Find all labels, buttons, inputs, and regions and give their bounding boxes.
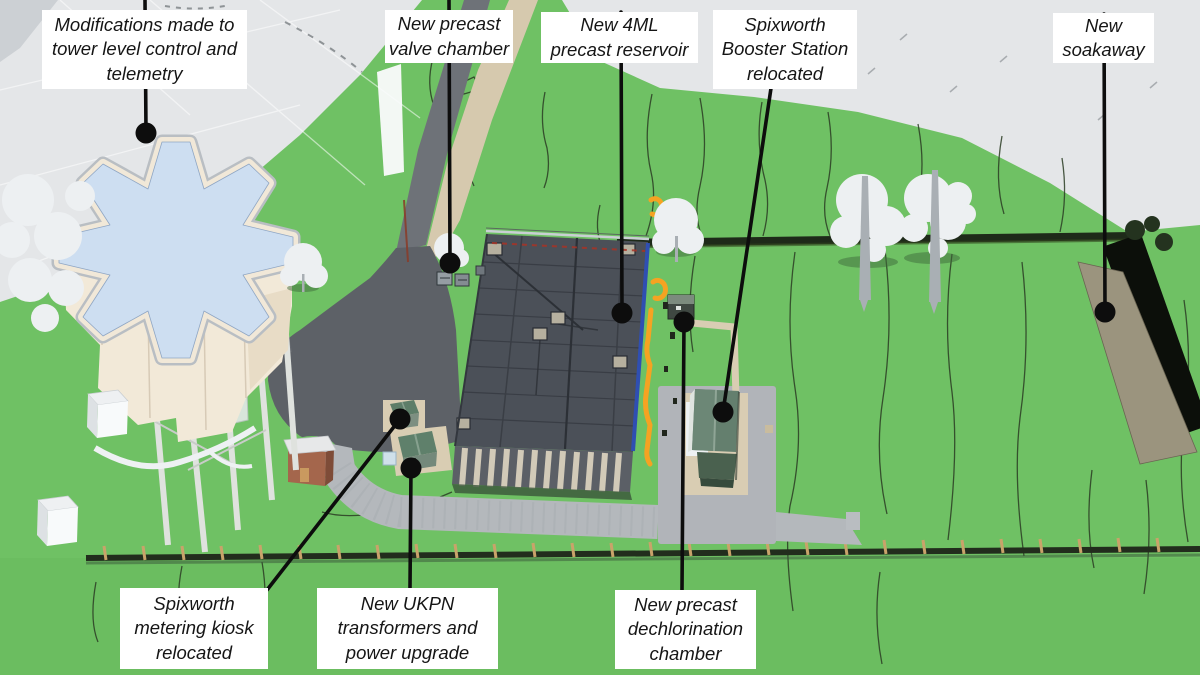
callout-line-dechlorination	[682, 322, 684, 590]
callout-text-line: precast reservoir	[551, 38, 689, 62]
callout-text-line: valve chamber	[389, 37, 509, 61]
callout-text-line: metering kiosk	[134, 616, 253, 640]
callout-label-dechlorination: New precast dechlorination chamber	[615, 590, 756, 669]
callout-label-metering-kiosk: Spixworth metering kiosk relocated	[120, 588, 268, 669]
callout-line-ukpn	[410, 468, 411, 588]
callout-text-line: New precast	[634, 593, 737, 617]
callout-text-line: Spixworth	[744, 13, 825, 37]
callout-text-line: transformers and	[338, 616, 478, 640]
blue-panel	[383, 452, 396, 465]
white-cube-1	[87, 390, 128, 438]
callout-text-line: dechlorination	[628, 617, 743, 641]
callout-text-line: Booster Station	[722, 37, 849, 61]
callout-dot-booster-station	[713, 402, 734, 423]
callout-dot-dechlorination	[674, 312, 695, 333]
callout-text-line: Spixworth	[153, 592, 234, 616]
callout-dot-soakaway	[1095, 302, 1116, 323]
callout-text-line: power upgrade	[346, 641, 469, 665]
small-pad	[846, 512, 860, 530]
callout-dot-ukpn	[401, 458, 422, 479]
callout-label-booster-station: Spixworth Booster Station relocated	[713, 10, 857, 89]
callout-text-line: chamber	[650, 642, 722, 666]
callout-text-line: Modifications made to	[55, 13, 235, 37]
callout-label-reservoir: New 4ML precast reservoir	[541, 12, 698, 63]
callout-text-line: telemetry	[106, 62, 182, 86]
callout-dot-tower	[136, 123, 157, 144]
callout-text-line: soakaway	[1062, 38, 1144, 62]
callout-label-tower: Modifications made to tower level contro…	[42, 10, 247, 89]
callout-dot-metering-kiosk	[390, 409, 411, 430]
callout-text-line: New	[1085, 14, 1122, 38]
site-plan-canvas	[0, 0, 1200, 675]
callout-text-line: relocated	[156, 641, 232, 665]
tower-roof-top	[59, 142, 293, 358]
callout-label-ukpn: New UKPN transformers and power upgrade	[317, 588, 498, 669]
callout-text-line: relocated	[747, 62, 823, 86]
callout-dot-reservoir	[612, 303, 633, 324]
site-plan-figure: Modifications made to tower level contro…	[0, 0, 1200, 675]
callout-label-soakaway: New soakaway	[1053, 13, 1154, 63]
white-cube-2	[37, 496, 78, 546]
callout-text-line: New precast	[398, 12, 501, 36]
callout-label-valve-chamber: New precast valve chamber	[385, 10, 513, 63]
callout-dot-valve-chamber	[440, 253, 461, 274]
callout-text-line: tower level control and	[52, 37, 237, 61]
callout-text-line: New UKPN	[361, 592, 455, 616]
callout-text-line: New 4ML	[580, 13, 658, 37]
